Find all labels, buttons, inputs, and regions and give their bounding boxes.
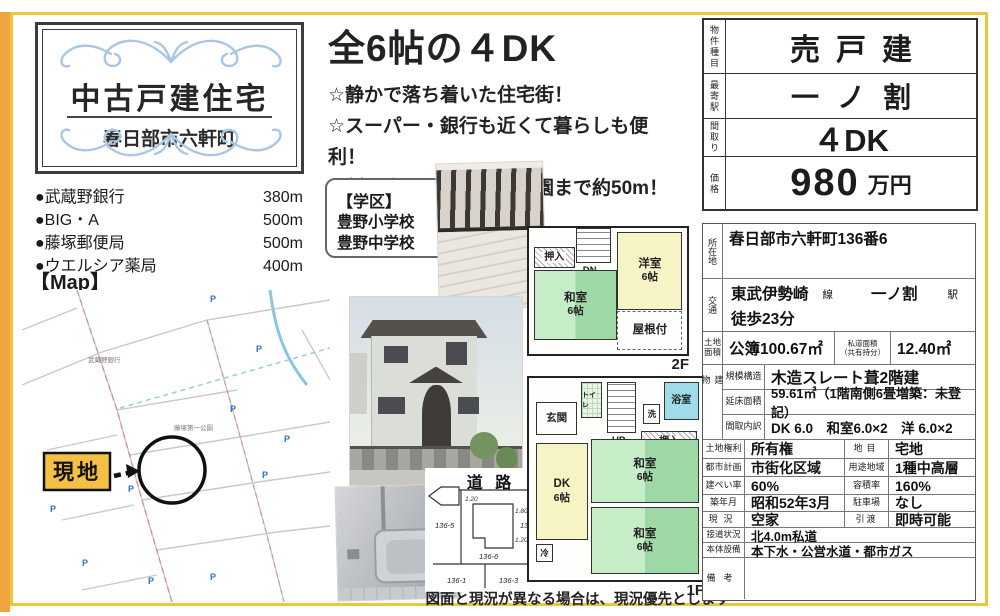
bush [470, 432, 498, 458]
row-label: 都市計画 [703, 459, 745, 476]
facility-row: ●武蔵野銀行 380m [35, 186, 303, 209]
map-drawing: 武蔵野銀行 藤塚第一公園 P P P P P P P P P P 現地 [22, 290, 330, 602]
western-room-2f: 洋室 6帖 [617, 232, 682, 310]
row-coverage: 建ぺい率 60% 容積率 160% [703, 477, 975, 495]
price-amount: 980 [790, 162, 859, 205]
floor-area-value: 59.61㎡（1階南側6畳増築：未登記） [765, 390, 975, 414]
summary-row-price: 価格 980 万円 [704, 157, 976, 210]
price: 980 万円 [726, 157, 976, 210]
station-suffix: 駅 [948, 287, 959, 302]
summary-row-layout: 間取り ４DK [704, 119, 976, 157]
line-suffix: 線 [823, 287, 834, 302]
closet-2f: 押入 [534, 247, 575, 268]
row-access: 交通 東武伊勢崎 線 一ノ割 駅 徒歩23分 [703, 279, 975, 332]
bath-fixture [347, 549, 359, 559]
walk-time: 徒歩23分 [731, 307, 967, 329]
roofed-balcony-2f: 屋根付 [617, 311, 682, 350]
row-label: 地目 [845, 440, 889, 458]
junior-high-school: 豊野中学校 [337, 233, 441, 254]
lot-number: 136-5 [435, 521, 455, 530]
parking-icon: P [262, 470, 268, 480]
selling-point: ☆静かで落ち着いた住宅街！ [328, 80, 678, 111]
japanese-room2-1f: 和室 6帖 [591, 507, 698, 574]
remarks-value [745, 558, 975, 599]
entrance-1f: 玄関 [536, 402, 578, 434]
row-label: 延床面積 [723, 390, 765, 414]
stairs-2f [576, 228, 611, 263]
utilities-value: 本下水・公営水道・都市ガス [745, 543, 975, 557]
row-label: 駐車場 [845, 495, 889, 511]
facility-distance: 500m [263, 232, 303, 255]
row-label: 所在地 [703, 224, 723, 278]
japanese-room-2f: 和室 6帖 [534, 270, 618, 341]
house-window [384, 346, 408, 363]
row-label: 土地面積 [703, 332, 723, 364]
lot-diagram-drawing: 道 路 1.20 1.80 1.20 136-5 136-7 136-6 136… [425, 468, 543, 592]
lot-number: 136-3 [499, 576, 519, 585]
nearest-station: 一ノ割 [726, 74, 976, 118]
disclaimer-note: 図面と現況が異なる場合は、現況優先とします [400, 588, 730, 609]
facility-distance: 400m [263, 255, 303, 278]
entrance-arch [422, 385, 451, 449]
exterior-photo [350, 297, 522, 485]
land-cat-value: 宅地 [889, 440, 975, 458]
summary-row-type: 物件種目 売戸建 [704, 20, 976, 74]
site-label: 現地 [53, 460, 101, 484]
row-building: 建物 規模構造 木造スレート葺2階建 延床面積 59.61㎡（1階南側6畳増築：… [703, 365, 975, 440]
coverage-value: 60% [745, 477, 845, 494]
toilet-1f: トイレ [581, 382, 602, 418]
row-label: 築年月 [703, 495, 745, 511]
school-district-box: 【学区】 豊野小学校 豊野中学校 [325, 178, 453, 258]
left-edge-strip [0, 12, 10, 612]
layout-detail-value: DK 6.0 和室6.0×2 洋 6.0×2 [765, 415, 975, 439]
zoning-value: 1種中高層 [889, 459, 975, 476]
flyer-title: 中古戸建住宅 [43, 74, 296, 118]
parking-icon: P [128, 484, 134, 494]
neighbor-building [350, 353, 367, 413]
price-unit: 万円 [868, 168, 912, 200]
summary-row-station: 最寄駅 一ノ割 [704, 74, 976, 119]
row-label: 土地権利 [703, 440, 745, 458]
location-value: 春日部市六軒町136番6 [723, 224, 975, 278]
building-label: 建物 [703, 365, 723, 439]
details-table: 所在地 春日部市六軒町136番6 交通 東武伊勢崎 線 一ノ割 駅 徒歩23分 … [702, 223, 976, 601]
parking-icon: P [284, 434, 290, 444]
rail-line: 東武伊勢崎 [731, 282, 809, 304]
real-estate-flyer: 中古戸建住宅 春日部市六軒町 ●武蔵野銀行 380m ●BIG・A 500m [0, 0, 1000, 616]
nearby-facilities-list: ●武蔵野銀行 380m ●BIG・A 500m ●藤塚郵便局 500m ●ウエル… [35, 186, 303, 278]
floorplan-1f: 玄関 トイレ UP 洗 浴室 押入 DK 6帖 冷 和室 6帖 和室 6帖 [527, 376, 704, 582]
summary-table: 物件種目 売戸建 最寄駅 一ノ割 間取り ４DK 価格 980 万円 [702, 18, 978, 211]
city-plan-value: 市街化区域 [745, 459, 845, 476]
row-label: 交通 [703, 279, 723, 331]
row-land-right: 土地権利 所有権 地目 宅地 [703, 440, 975, 459]
parking-icon: P [82, 558, 88, 568]
parking-icon: P [230, 404, 236, 414]
road-label: 道 路 [467, 473, 515, 492]
map-label-bank: 武蔵野銀行 [88, 355, 121, 364]
room-layout: ４DK [726, 119, 976, 156]
row-utilities: 本体設備 本下水・公営水道・都市ガス [703, 543, 975, 558]
row-label: 現況 [703, 512, 745, 527]
facility-row: ●藤塚郵便局 500m [35, 232, 303, 255]
land-right-value: 所有権 [745, 440, 845, 458]
lot-measure: 1.20 [465, 496, 478, 503]
facility-row: ●BIG・A 500m [35, 209, 303, 232]
property-type: 売戸建 [726, 20, 976, 73]
row-label: 本体設備 [703, 543, 745, 557]
lot-diagram: 道 路 1.20 1.80 1.20 136-5 136-7 136-6 136… [425, 468, 543, 592]
facility-name: ●武蔵野銀行 [35, 186, 125, 209]
floor-2f-tag: 2F [671, 356, 689, 373]
title-box-inner-border: 中古戸建住宅 春日部市六軒町 [42, 29, 297, 167]
facility-distance: 380m [263, 186, 303, 209]
row-label: 備考 [703, 558, 745, 599]
facility-distance: 500m [263, 209, 303, 232]
row-label: 引渡 [845, 512, 889, 527]
private-road-label: 私道面積 （共有持分） [835, 332, 891, 364]
row-location: 所在地 春日部市六軒町136番6 [703, 224, 975, 279]
parking-icon: P [148, 576, 154, 586]
row-label: 用途地域 [845, 459, 889, 476]
row-floor-area: 延床面積 59.61㎡（1階南側6畳増築：未登記） [723, 390, 975, 415]
handover-value: 即時可能 [889, 512, 975, 527]
row-status: 現況 空家 引渡 即時可能 [703, 512, 975, 528]
row-land-area: 土地面積 公簿100.67㎡ 私道面積 （共有持分） 12.40㎡ [703, 332, 975, 365]
row-label: 接道状況 [703, 528, 745, 542]
facility-name: ●藤塚郵便局 [35, 232, 125, 255]
floorplan-2f: DN 押入 洋室 6帖 和室 6帖 屋根付 2F [527, 226, 689, 356]
headline-title: 全6帖の４DK [328, 18, 678, 72]
parking-icon: P [210, 572, 216, 582]
map-label-park: 藤塚第一公園 [174, 423, 213, 432]
parking-icon: P [256, 344, 262, 354]
fridge-1f: 冷 [536, 544, 553, 562]
summary-label: 最寄駅 [704, 74, 726, 118]
school-heading: 【学区】 [337, 188, 441, 212]
flourish-icon [51, 124, 291, 164]
balcony-railing [436, 167, 544, 232]
row-layout-detail: 間取内訳 DK 6.0 和室6.0×2 洋 6.0×2 [723, 415, 975, 439]
far-value: 160% [889, 477, 975, 494]
elementary-school: 豊野小学校 [337, 212, 441, 233]
stairs-1f [607, 382, 636, 433]
japanese-room1-1f: 和室 6帖 [591, 439, 698, 504]
row-city-plan: 都市計画 市街化区域 用途地域 1種中高層 [703, 459, 975, 477]
title-divider [67, 116, 272, 118]
facility-name: ●BIG・A [35, 209, 99, 232]
parking-icon: P [210, 294, 216, 304]
private-road-value: 12.40㎡ [891, 332, 975, 364]
row-label: 間取内訳 [723, 415, 765, 439]
house-window [446, 342, 467, 365]
summary-label: 間取り [704, 119, 726, 156]
location-map: 武蔵野銀行 藤塚第一公園 P P P P P P P P P P 現地 [22, 290, 330, 602]
summary-label: 物件種目 [704, 20, 726, 73]
summary-label: 価格 [704, 157, 726, 210]
station-name: 一ノ割 [871, 282, 918, 304]
lot-number: 136-6 [479, 552, 499, 561]
land-area-value: 公簿100.67㎡ [723, 332, 835, 364]
house-window [458, 397, 479, 414]
lot-number: 136-1 [447, 576, 466, 585]
house-window [378, 397, 406, 414]
bush [496, 447, 517, 470]
row-label: 建ぺい率 [703, 477, 745, 494]
parking-icon: P [50, 504, 56, 514]
access-value: 東武伊勢崎 線 一ノ割 駅 徒歩23分 [723, 279, 975, 331]
row-label: 容積率 [845, 477, 889, 494]
dk-1f: DK 6帖 [536, 443, 588, 540]
bath-1f: 浴室 [664, 382, 699, 420]
row-remarks: 備考 [703, 558, 975, 599]
title-box: 中古戸建住宅 春日部市六軒町 [35, 22, 304, 174]
flourish-icon [51, 32, 291, 72]
laundry-1f: 洗 [643, 404, 660, 424]
row-label: 規模構造 [723, 365, 765, 389]
